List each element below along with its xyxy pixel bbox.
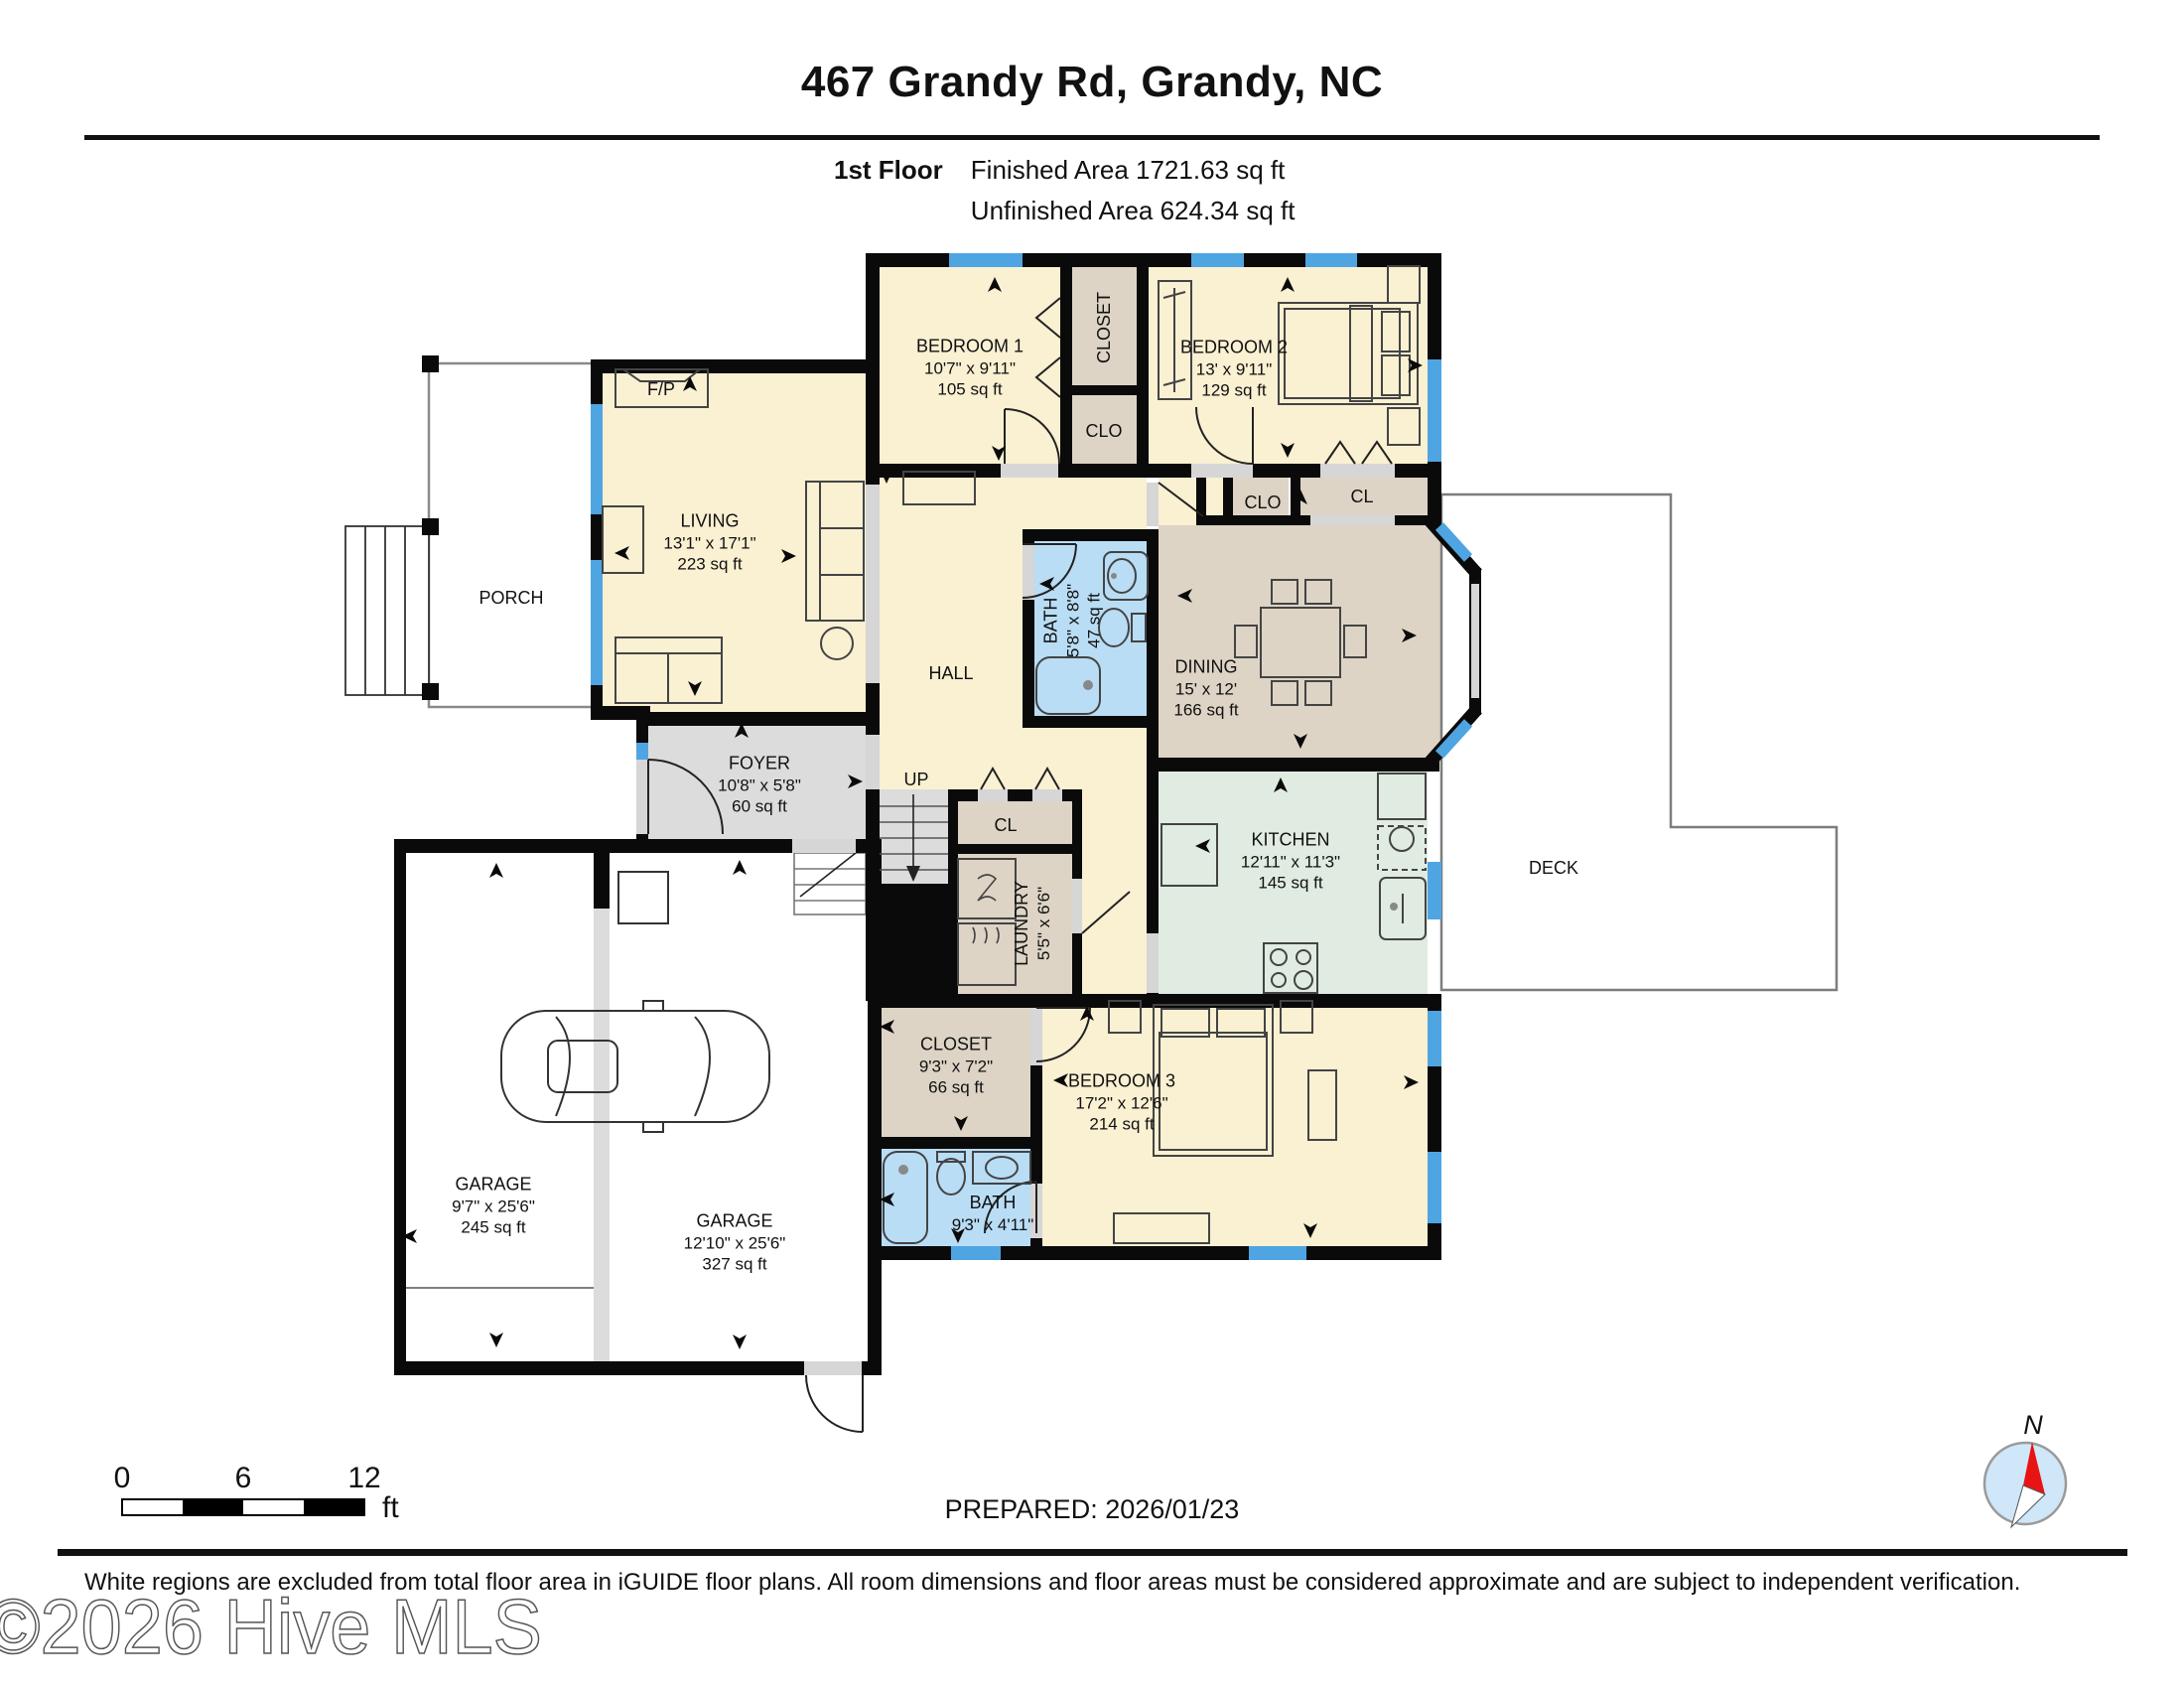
compass-north-label: N — [2023, 1410, 2043, 1440]
porch-steps — [345, 526, 429, 695]
label-up: UP — [903, 769, 928, 791]
room-label-porch: PORCH — [478, 587, 543, 610]
room-label-bath2: BATH 9'3" x 4'11" — [952, 1192, 1034, 1235]
room-label-cl-dining: CL — [1350, 486, 1373, 508]
footer-divider — [58, 1549, 2127, 1556]
room-label-living: LIVING 13'1" x 17'1" 223 sq ft — [663, 510, 755, 575]
scale-6: 6 — [235, 1462, 252, 1494]
porch-outline — [429, 363, 597, 707]
room-label-garage1: GARAGE 9'7" x 25'6" 245 sq ft — [452, 1174, 535, 1238]
water-heater-icon — [618, 872, 668, 923]
room-label-bedroom3: BEDROOM 3 17'2" x 12'6" 214 sq ft — [1068, 1070, 1175, 1135]
room-label-bedroom1: BEDROOM 1 10'7" x 9'11" 105 sq ft — [916, 336, 1024, 400]
room-label-foyer: FOYER 10'8" x 5'8" 60 sq ft — [718, 753, 801, 817]
room-fills — [406, 267, 1475, 1361]
floor-plan-svg: 0 6 12 ft N ©2026 Hive MLS — [0, 0, 2184, 1688]
prepared-date: PREPARED: 2026/01/23 — [0, 1494, 2184, 1525]
deck-outline — [1441, 494, 1837, 990]
scale-0: 0 — [114, 1462, 131, 1494]
disclaimer-text: White regions are excluded from total fl… — [84, 1569, 2020, 1597]
room-label-clo-top: CLO — [1085, 420, 1122, 443]
room-label-bath1: BATH 5'8" x 8'8" 47 sq ft — [1040, 584, 1105, 657]
room-label-hall: HALL — [928, 662, 973, 685]
room-label-clo-dining: CLO — [1244, 492, 1281, 514]
room-label-kitchen: KITCHEN 12'11" x 11'3" 145 sq ft — [1241, 829, 1340, 894]
room-label-dining: DINING 15' x 12' 166 sq ft — [1173, 656, 1238, 721]
room-label-closet2: CLOSET 9'3" x 7'2" 66 sq ft — [919, 1034, 993, 1098]
floorplan-page: 467 Grandy Rd, Grandy, NC 1st Floor Fini… — [0, 0, 2184, 1688]
scale-12: 12 — [347, 1462, 380, 1494]
room-label-laundry: LAUNDRY 5'5" x 6'6" — [1011, 881, 1054, 966]
room-label-garage2: GARAGE 12'10" x 25'6" 327 sq ft — [684, 1210, 786, 1275]
room-label-closet-top: CLOSET — [1093, 292, 1116, 363]
room-label-bedroom2: BEDROOM 2 13' x 9'11" 129 sq ft — [1180, 337, 1288, 401]
room-label-cl-stairs: CL — [994, 814, 1017, 837]
room-label-deck: DECK — [1529, 857, 1578, 880]
entry-steps — [794, 853, 866, 914]
room-label-fireplace: F/P — [647, 378, 675, 401]
